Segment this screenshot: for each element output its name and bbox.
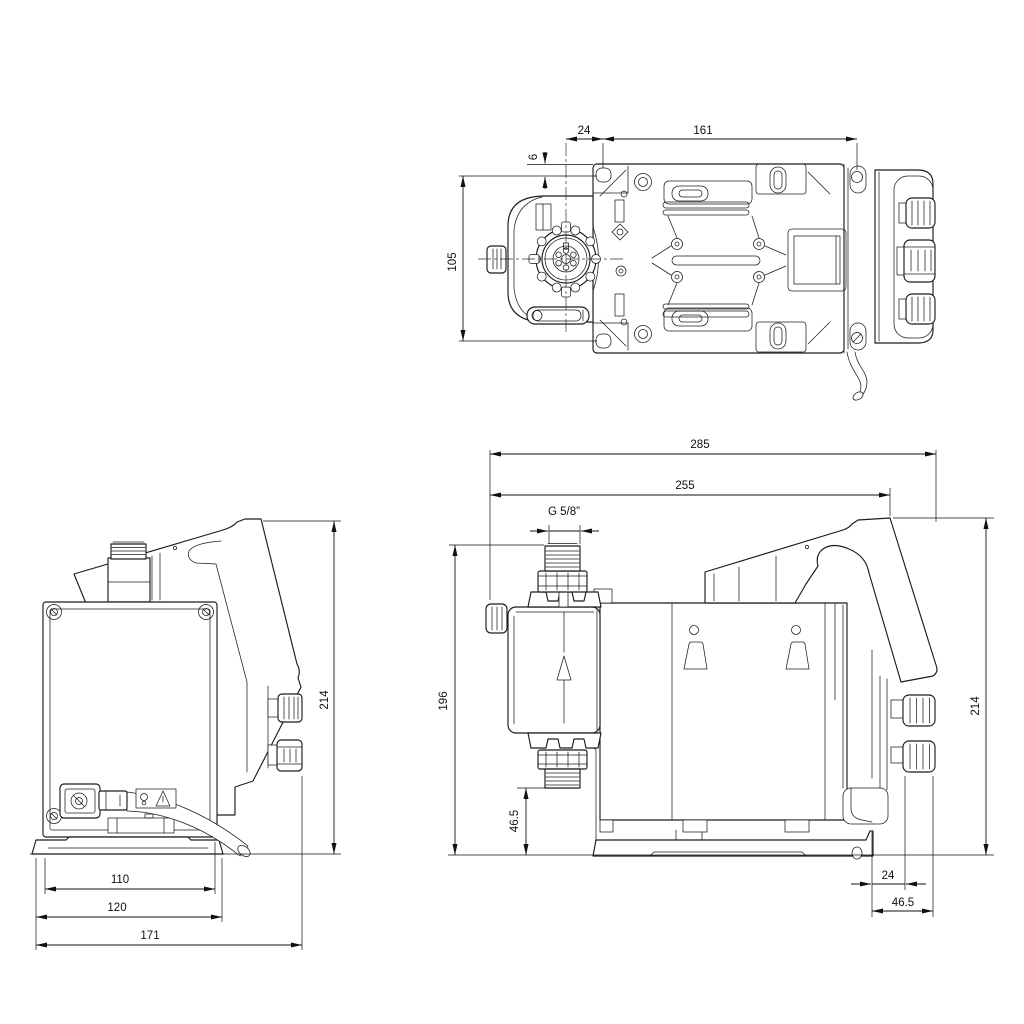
dim-front-171: 171: [140, 930, 159, 942]
dim-side-46-5-left: 46.5: [509, 810, 521, 832]
base-foot-front: [32, 837, 223, 854]
dosing-head: [486, 544, 601, 789]
control-unit-top: [847, 170, 935, 402]
dim-side-46-5-bottom: 46.5: [892, 897, 914, 909]
dim-side-196: 196: [438, 691, 450, 710]
warning-label: [136, 789, 176, 808]
pump-body-side: [589, 589, 872, 840]
side-knob-upper: [891, 695, 935, 726]
fixing-strip: [844, 164, 866, 353]
suction-valve: [528, 733, 601, 788]
dim-front-214: 214: [319, 690, 331, 710]
power-cable: [847, 352, 867, 402]
rear-knob-panel: [843, 676, 888, 859]
side-knob-lower: [891, 741, 935, 772]
discharge-valve: [528, 544, 601, 608]
mounting-clip: [852, 847, 862, 859]
front-knob-lower: [268, 740, 302, 771]
clamp-bracket: [527, 307, 589, 324]
dim-top-6: 6: [528, 154, 540, 160]
side-view: 285 255 G 5/8” 196 46.5 214: [438, 439, 994, 917]
dim-side-255: 255: [675, 480, 694, 492]
dim-side-24: 24: [882, 870, 895, 882]
mounting-plate: [593, 164, 846, 353]
dim-top-161: 161: [693, 125, 712, 137]
pump-dimensional-drawing: 24 161 6 105: [0, 0, 1024, 1024]
dim-top-24: 24: [578, 125, 591, 137]
dial-knob: [487, 246, 506, 273]
dim-front-120: 120: [107, 902, 126, 914]
top-view: 24 161 6 105: [447, 125, 935, 402]
dim-front-110: 110: [111, 874, 129, 886]
dim-top-105: 105: [447, 252, 459, 271]
dim-side-214: 214: [970, 696, 982, 716]
dim-side-285: 285: [690, 439, 709, 451]
drawing-canvas: 24 161 6 105: [0, 0, 1024, 1024]
head-knob: [486, 604, 507, 633]
base-foot-side: [593, 831, 873, 856]
front-view: 214 110 120 171: [30, 519, 341, 950]
front-discharge-valve: [108, 542, 150, 602]
dim-side-thread: G 5/8”: [548, 506, 580, 518]
